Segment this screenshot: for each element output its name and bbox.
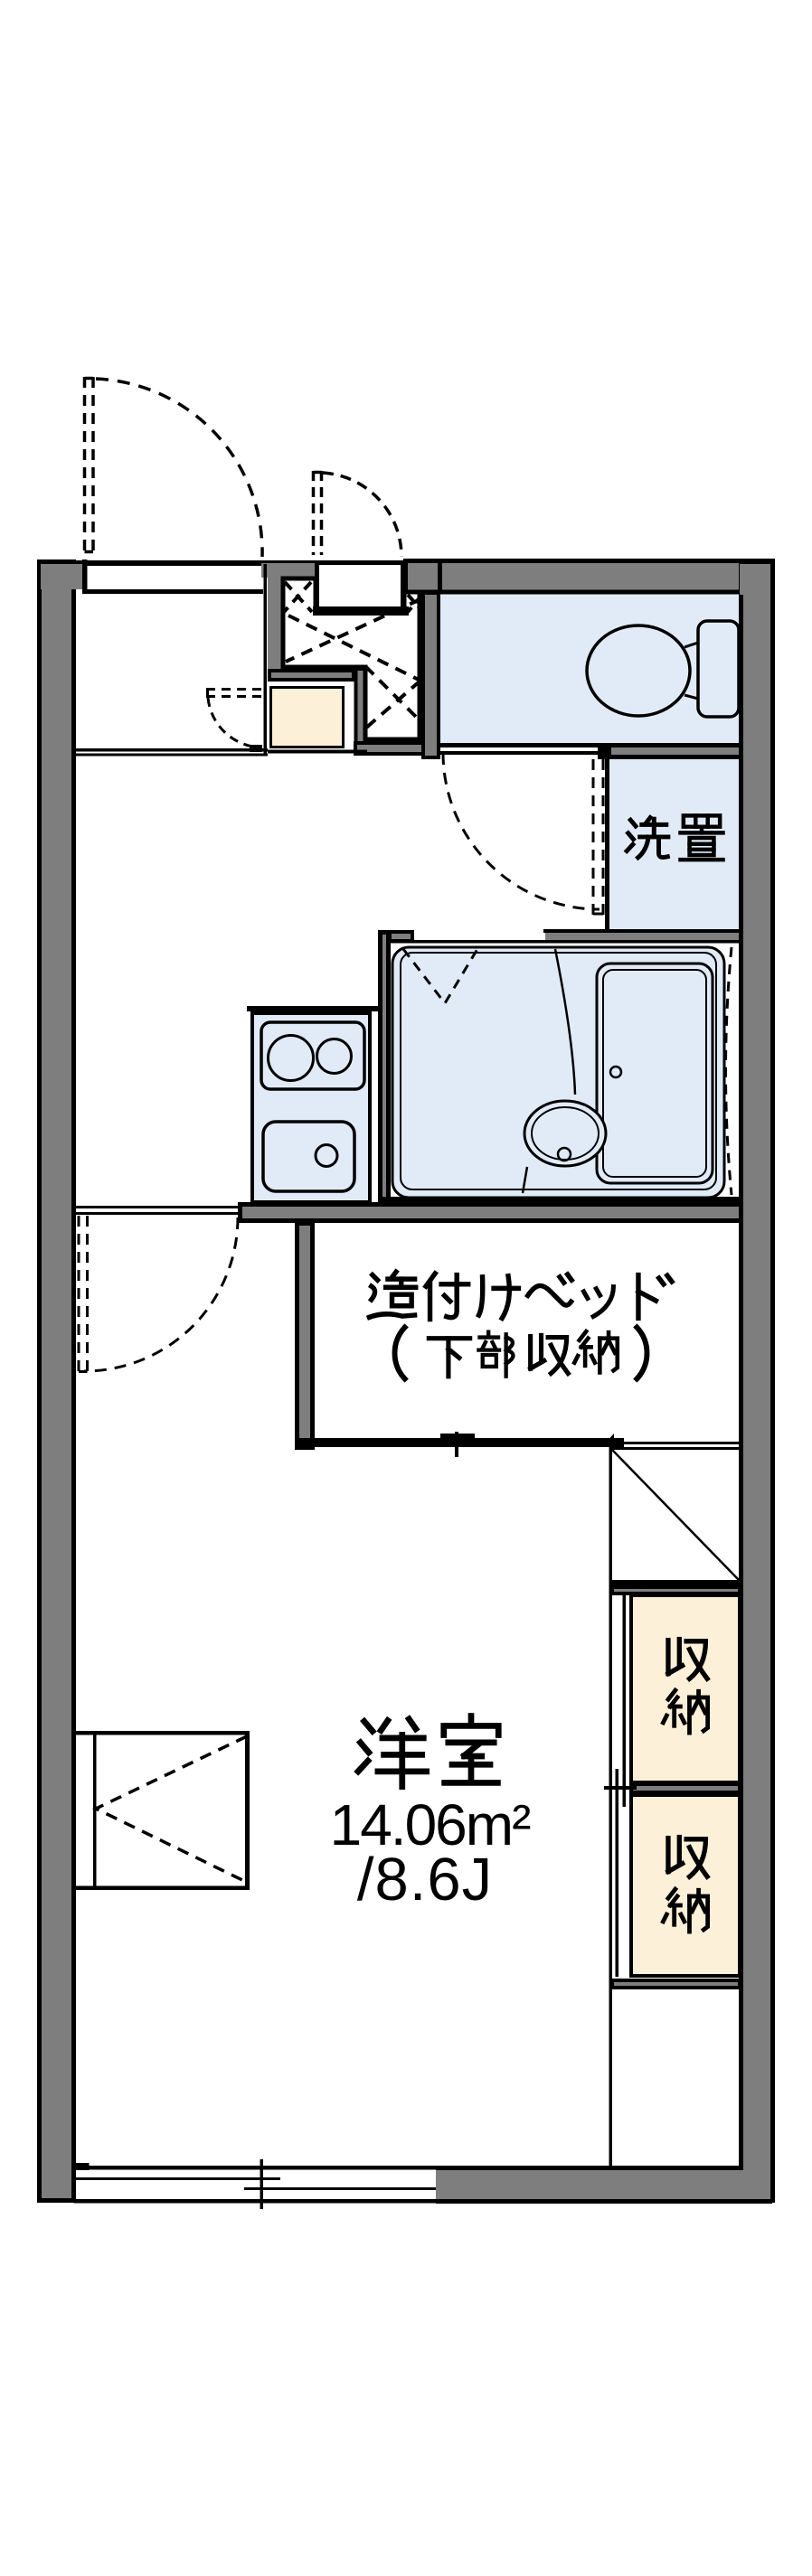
svg-text:/8.6J: /8.6J [357,1846,493,1913]
